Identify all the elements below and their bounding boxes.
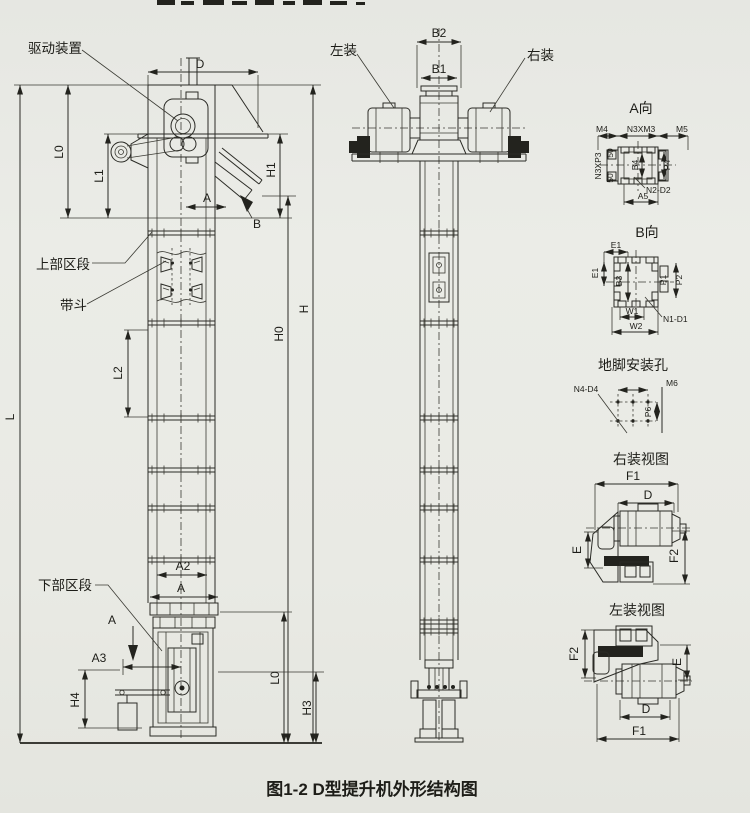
dim-H1: H1 — [264, 162, 278, 178]
left-mount-label: 左装 — [330, 43, 357, 58]
dim-N3XP3: N3XP3 — [593, 152, 603, 179]
dim-N3XM3: N3XM3 — [627, 124, 656, 134]
dim-rm-D: D — [644, 488, 653, 502]
dim-B3: B3 — [614, 276, 624, 287]
dim-H3: H3 — [300, 700, 314, 716]
side-motor-right — [458, 103, 529, 158]
dim-B4: B4 — [630, 160, 640, 171]
dim-H: H — [297, 305, 311, 314]
dim-A-head: A — [203, 191, 211, 205]
dim-rm-F1: F1 — [626, 469, 640, 483]
dim-lm-F1: F1 — [632, 724, 646, 738]
dim-B1: B1 — [432, 62, 447, 76]
dim-P4: P4 — [662, 160, 672, 171]
view-a-title: A向 — [629, 100, 652, 116]
dim-M6: M6 — [666, 378, 678, 388]
dim-P2: P2 — [674, 275, 684, 286]
dim-L2: L2 — [111, 366, 125, 380]
dim-L1: L1 — [92, 169, 106, 183]
dim-L0-bottom: L0 — [268, 671, 282, 685]
dim-E1-top: E1 — [611, 240, 622, 250]
dim-H0: H0 — [272, 326, 286, 342]
dim-M4: M4 — [596, 124, 608, 134]
right-mount-label: 右装 — [527, 48, 554, 63]
drive-gearbox — [164, 92, 208, 163]
discharge-chute — [215, 148, 262, 200]
bucket-cutaway — [157, 252, 206, 303]
bucket-label: 带斗 — [60, 298, 87, 313]
drive-unit-label: 驱动装置 — [28, 41, 82, 56]
dim-L0-top: L0 — [52, 145, 66, 159]
lower-section-label: 下部区段 — [38, 578, 92, 593]
drawing-page: 驱动装置 上部区段 带斗 下部区段 D L0 L1 H1 A B L L2 H0… — [0, 0, 750, 813]
front-view — [20, 58, 322, 743]
dim-D: D — [196, 57, 205, 71]
dim-A-section: A — [108, 613, 116, 627]
boot-front — [115, 603, 218, 736]
figure-caption: 图1-2 D型提升机外形结构图 — [266, 779, 478, 799]
anchor-holes-view: 地脚安装孔 N4-D4 M6 P6 — [574, 357, 678, 433]
dim-L: L — [3, 413, 17, 420]
dim-A5: A5 — [638, 191, 649, 201]
drive-motor — [111, 134, 181, 168]
dim-A2: A2 — [176, 559, 191, 573]
dim-W1: W1 — [626, 306, 639, 316]
elevator-drawing: 驱动装置 上部区段 带斗 下部区段 D L0 L1 H1 A B L L2 H0… — [0, 0, 750, 813]
dim-lm-D: D — [642, 702, 651, 716]
dim-B2: B2 — [432, 26, 447, 40]
dim-rm-F2: F2 — [667, 549, 681, 563]
left-mount-view: 左装视图 F2 E D F1 — [567, 602, 692, 742]
dim-lm-F2: F2 — [567, 647, 581, 661]
side-motor-left — [349, 103, 420, 158]
dim-B: B — [253, 217, 261, 231]
dim-M5: M5 — [676, 124, 688, 134]
dim-lm-E: E — [670, 658, 684, 666]
side-view: 左装 右装 B2 B1 — [330, 26, 554, 742]
view-b-title: B向 — [635, 224, 658, 240]
dim-N4-D4: N4-D4 — [574, 384, 599, 394]
dim-50-bottom: 50 — [605, 173, 615, 183]
right-mount-title: 右装视图 — [613, 451, 669, 467]
left-mount-title: 左装视图 — [609, 602, 665, 618]
dim-A-boot: A — [177, 581, 185, 595]
dim-W2: W2 — [630, 321, 643, 331]
dim-50-top: 50 — [605, 148, 615, 158]
view-a: A向 M4 N3XM3 M5 N3XP3 50 50 B4 P4 N2-D2 A… — [593, 100, 688, 205]
dim-E1-left: E1 — [590, 268, 600, 279]
anchor-view-title: 地脚安装孔 — [598, 357, 668, 373]
right-mount-view: 右装视图 F1 D E F2 — [570, 451, 690, 584]
view-b: B向 E1 E1 B3 P1 P2 W1 W2 N1-D1 — [590, 224, 688, 335]
dim-A3: A3 — [92, 651, 107, 665]
dim-H4: H4 — [68, 692, 82, 708]
dim-rm-E: E — [570, 546, 584, 554]
dim-P6: P6 — [643, 407, 653, 418]
dim-N2-D2: N2-D2 — [646, 185, 671, 195]
dim-P1: P1 — [658, 275, 668, 286]
upper-section-label: 上部区段 — [36, 257, 90, 272]
dim-N1-D1: N1-D1 — [663, 314, 688, 324]
cropped-header-text — [157, 0, 365, 5]
